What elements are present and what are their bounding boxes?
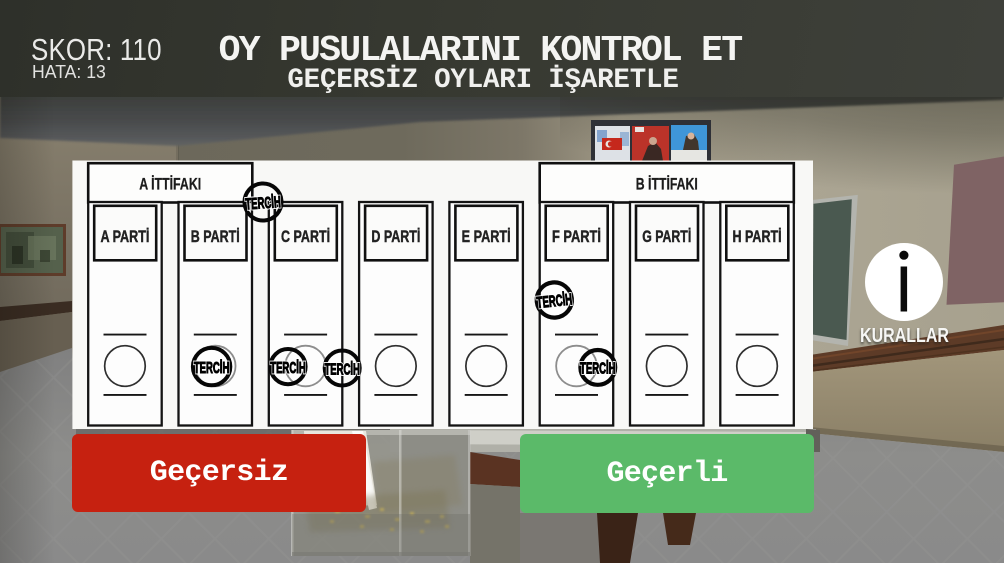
- svg-text:TERCİH: TERCİH: [324, 360, 360, 378]
- svg-text:TERCİH: TERCİH: [536, 290, 573, 312]
- svg-text:C PARTİ: C PARTİ: [281, 228, 330, 246]
- svg-text:D PARTİ: D PARTİ: [371, 228, 420, 246]
- svg-text:B İTTİFAKI: B İTTİFAKI: [636, 174, 698, 193]
- svg-text:TERCİH: TERCİH: [194, 359, 230, 377]
- svg-text:TERCİH: TERCİH: [580, 360, 616, 378]
- svg-text:B PARTİ: B PARTİ: [191, 228, 240, 246]
- svg-text:H PARTİ: H PARTİ: [733, 228, 782, 246]
- svg-text:TERCİH: TERCİH: [245, 193, 282, 213]
- svg-text:TERCİH: TERCİH: [270, 359, 306, 377]
- svg-text:E PARTİ: E PARTİ: [462, 228, 511, 246]
- svg-text:A PARTİ: A PARTİ: [100, 228, 149, 246]
- svg-text:F PARTİ: F PARTİ: [552, 228, 601, 246]
- svg-text:A İTTİFAKI: A İTTİFAKI: [139, 174, 201, 193]
- svg-text:G PARTİ: G PARTİ: [642, 228, 691, 246]
